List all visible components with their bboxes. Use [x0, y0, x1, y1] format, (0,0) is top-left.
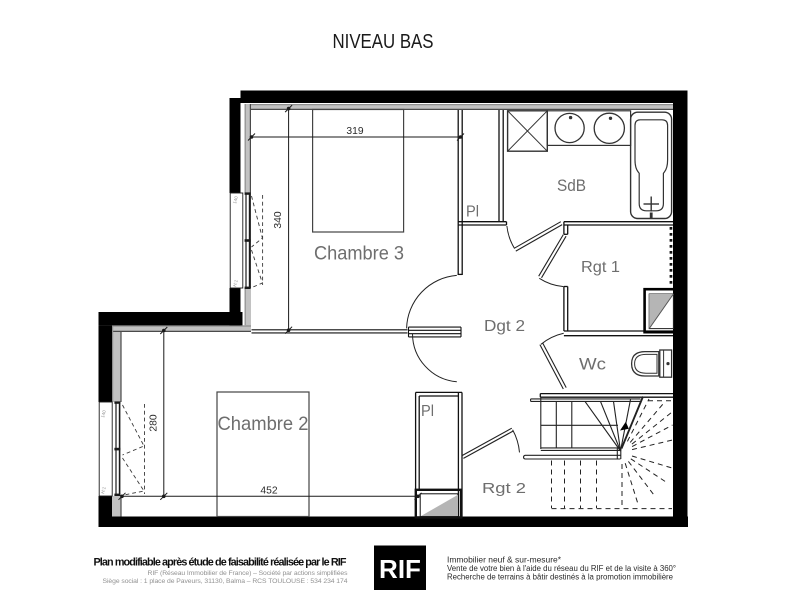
svg-text:Pl: Pl — [466, 204, 479, 221]
svg-text:Chambre 2: Chambre 2 — [218, 413, 309, 435]
svg-text:Pl: Pl — [421, 403, 434, 420]
svg-text:Plan modifiable après étude de: Plan modifiable après étude de faisabili… — [94, 557, 347, 569]
svg-text:Rgt 2: Rgt 2 — [482, 480, 526, 497]
svg-text:Siège social : 1 place de Pave: Siège social : 1 place de Paveurs, 31130… — [103, 578, 348, 585]
svg-text:452: 452 — [260, 486, 277, 497]
svg-text:NIVEAU BAS: NIVEAU BAS — [333, 30, 434, 53]
svg-text:Recherche de terrains à bâtir: Recherche de terrains à bâtir destinés à… — [447, 573, 673, 582]
svg-text:319: 319 — [346, 126, 363, 137]
svg-text:340: 340 — [273, 211, 284, 228]
svg-text:RIF (Réseau Immobilier de Fran: RIF (Réseau Immobilier de France) – Soci… — [148, 570, 349, 577]
svg-text:Dgt 2: Dgt 2 — [484, 318, 525, 335]
svg-text:280: 280 — [149, 414, 160, 431]
svg-text:RIF: RIF — [379, 554, 421, 584]
svg-text:Wc: Wc — [579, 356, 606, 374]
svg-text:SdB: SdB — [557, 176, 586, 195]
svg-text:Chambre 3: Chambre 3 — [314, 243, 404, 265]
svg-text:Rgt 1: Rgt 1 — [581, 259, 620, 276]
